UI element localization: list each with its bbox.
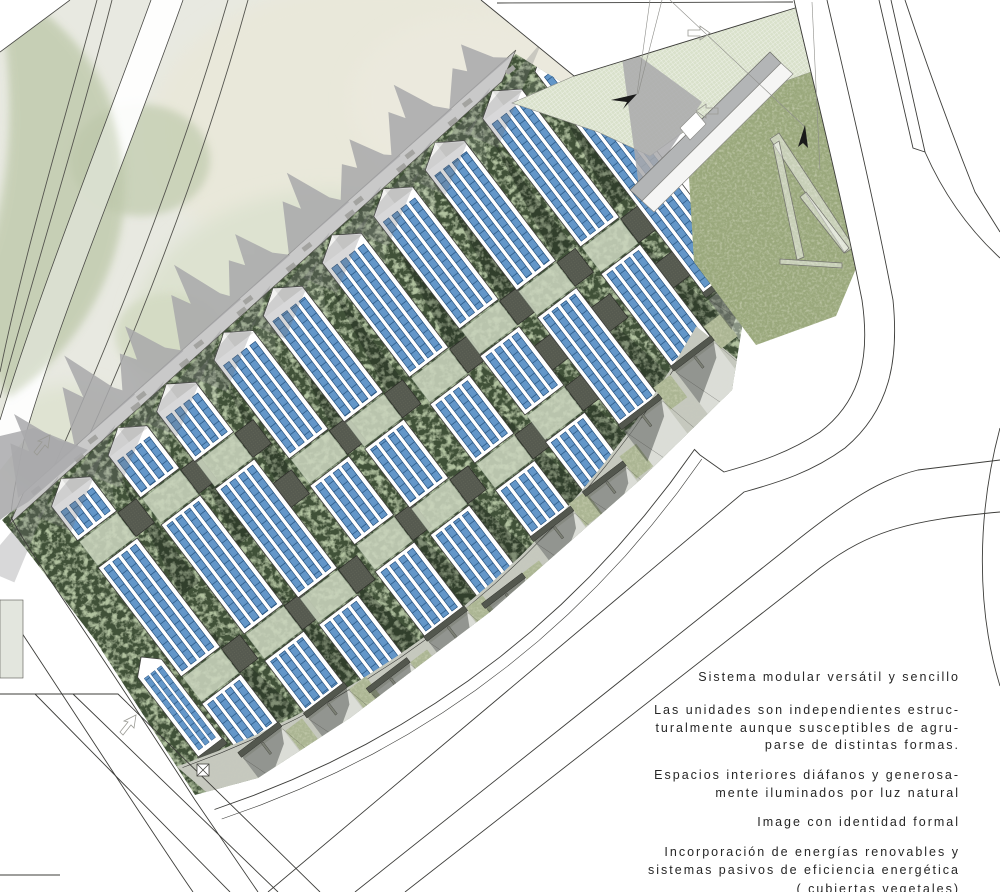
svg-text:mente iluminados por luz natur: mente iluminados por luz natural bbox=[715, 786, 960, 800]
svg-text:sistemas pasivos de eficiencia: sistemas pasivos de eficiencia energétic… bbox=[648, 863, 960, 877]
svg-text:Sistema modular versátil y sen: Sistema modular versátil y sencillo bbox=[698, 670, 960, 684]
svg-text:Espacios interiores diáfanos y: Espacios interiores diáfanos y generosa- bbox=[654, 768, 960, 782]
svg-text:turalmente aunque susceptibles: turalmente aunque susceptibles de agru- bbox=[655, 721, 960, 735]
svg-text:Image con identidad formal: Image con identidad formal bbox=[757, 815, 960, 829]
svg-text:Incorporación de energías reno: Incorporación de energías renovables y bbox=[664, 845, 960, 859]
svg-text:parse de distintas formas.: parse de distintas formas. bbox=[765, 738, 960, 752]
svg-text:Las unidades son independiente: Las unidades son independientes estruc- bbox=[654, 703, 960, 717]
svg-text:( cubiertas vegetales): ( cubiertas vegetales) bbox=[796, 882, 960, 892]
